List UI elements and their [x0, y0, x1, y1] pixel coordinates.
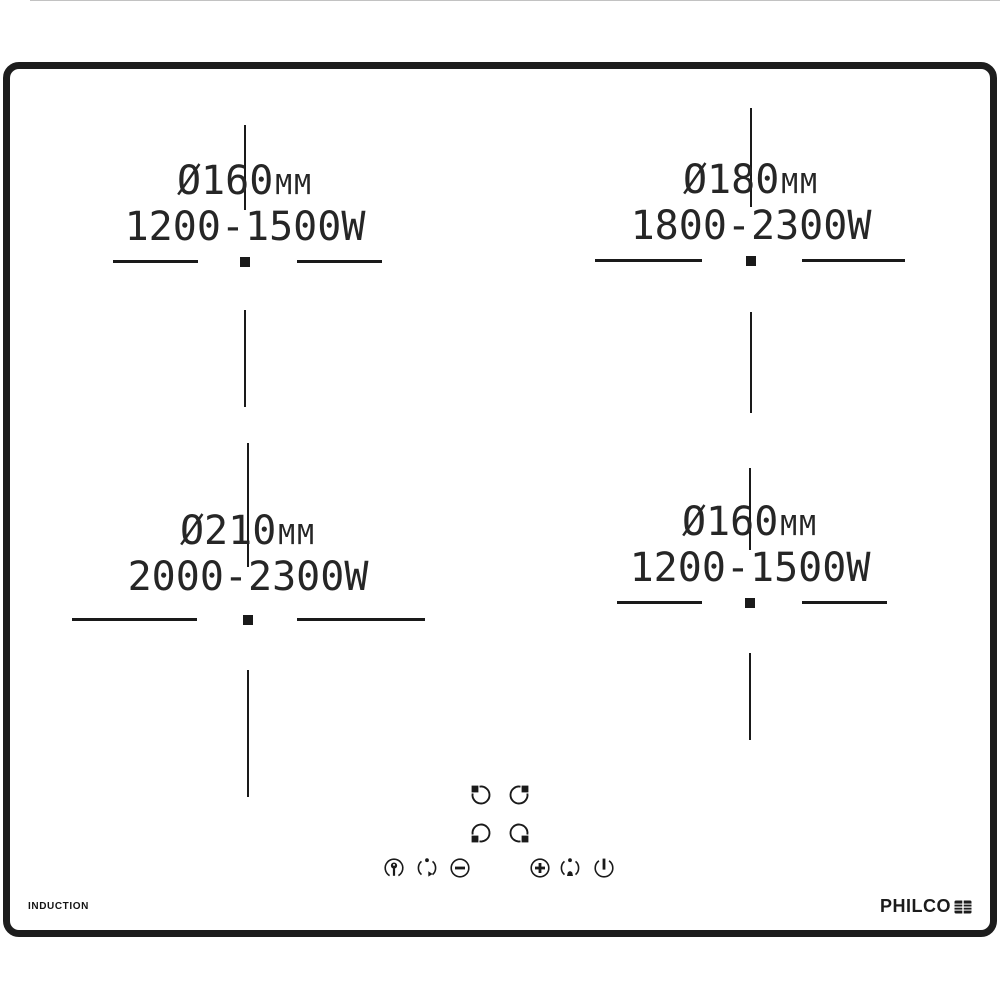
zone-power-label: 1200-1500W: [580, 547, 920, 590]
zone-crosshair-bottom: [247, 670, 249, 797]
zone-diameter-label: Ø180mm: [581, 159, 921, 205]
zone-crosshair-bottom: [750, 312, 752, 413]
zone-rear-left-icon: [469, 783, 493, 807]
zone-front-left-icon: [469, 821, 493, 845]
image-top-edge: [30, 0, 1000, 1]
booster-icon: [559, 857, 581, 879]
booster-button[interactable]: [559, 857, 581, 879]
zone-diameter-label: Ø210mm: [78, 510, 418, 556]
plus-icon: [529, 857, 551, 879]
zone-crosshair-left: [72, 618, 197, 621]
zone-crosshair-right: [802, 259, 905, 262]
zone-crosshair-left: [617, 601, 702, 604]
zone-diameter-label: Ø160mm: [75, 160, 415, 206]
zone-center-mark: [240, 257, 250, 267]
zone-center-mark: [745, 598, 755, 608]
minus-button[interactable]: [449, 857, 471, 879]
plus-button[interactable]: [529, 857, 551, 879]
zone-center-mark: [243, 615, 253, 625]
zone-crosshair-bottom: [749, 653, 751, 740]
child-lock-button[interactable]: [383, 857, 405, 879]
zone-front-right-icon: [507, 821, 531, 845]
zone-crosshair-left: [595, 259, 702, 262]
zone-power-label: 1800-2300W: [581, 205, 921, 248]
power-icon: [593, 857, 615, 879]
zone-select-rear-left-button[interactable]: [469, 783, 493, 807]
zone-select-front-left-button[interactable]: [469, 821, 493, 845]
brand-logo: PHILCO: [880, 896, 972, 917]
zone-diameter-label: Ø160mm: [580, 501, 920, 547]
timer-button[interactable]: [416, 857, 438, 879]
child-lock-icon: [383, 857, 405, 879]
philco-emblem-icon: [954, 900, 972, 914]
zone-rear-right-icon: [507, 783, 531, 807]
minus-icon: [449, 857, 471, 879]
zone-crosshair-right: [297, 260, 382, 263]
zone-crosshair-right: [297, 618, 425, 621]
timer-icon: [416, 857, 438, 879]
zone-crosshair-left: [113, 260, 198, 263]
power-button[interactable]: [593, 857, 615, 879]
zone-select-rear-right-button[interactable]: [507, 783, 531, 807]
zone-power-label: 2000-2300W: [78, 556, 418, 599]
zone-crosshair-right: [802, 601, 887, 604]
brand-name: PHILCO: [880, 896, 951, 917]
zone-power-label: 1200-1500W: [75, 206, 415, 249]
zone-crosshair-bottom: [244, 310, 246, 407]
induction-type-label: INDUCTION: [28, 901, 89, 912]
zone-center-mark: [746, 256, 756, 266]
zone-select-front-right-button[interactable]: [507, 821, 531, 845]
